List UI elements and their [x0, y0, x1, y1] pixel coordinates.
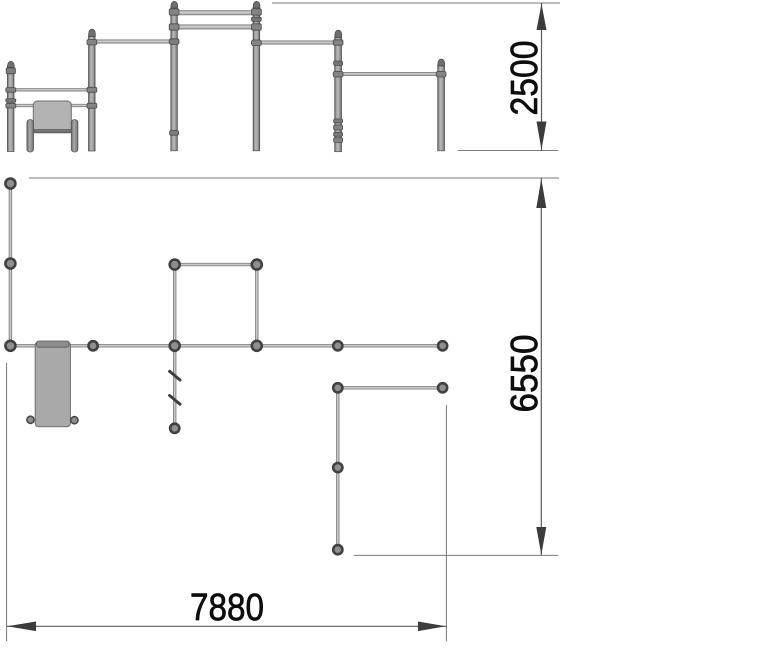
svg-text:6550: 6550 — [504, 335, 546, 413]
svg-text:7880: 7880 — [190, 587, 264, 629]
svg-text:2500: 2500 — [504, 41, 546, 116]
